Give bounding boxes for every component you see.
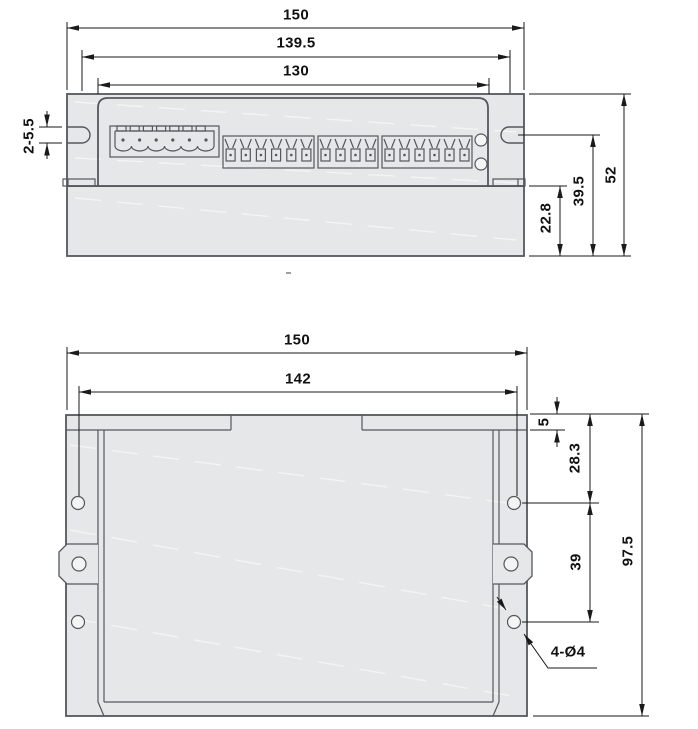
drawing-linework [0,0,698,729]
dim-front-base-height: 22.8 [538,203,555,233]
dim-plan-hole-span: 142 [285,371,311,388]
technical-drawing: 150 139.5 130 2-5.5 52 39.5 22.8 150 142… [0,0,698,729]
dim-plan-hole-pitch: 39 [568,553,585,570]
dim-front-slot-center-height: 39.5 [571,176,588,206]
dim-front-mounting-width: 139.5 [276,35,315,52]
plan-view [59,347,649,716]
plan-enclosure-outline [59,415,532,716]
stray-mark [286,272,291,274]
dim-plan-hole-callout: 4-Ø4 [551,644,586,661]
dim-plan-overall-width: 150 [284,332,310,349]
dim-front-panel-width: 130 [283,63,309,80]
dim-plan-top-inset: 5 [536,418,553,427]
dim-front-overall-height: 52 [603,166,620,183]
dim-plan-hole-top-offset: 28.3 [567,443,584,473]
dim-front-overall-width: 150 [283,7,309,24]
dim-front-slot-callout: 2-5.5 [21,118,38,154]
front-enclosure-outline [63,94,525,256]
dim-plan-overall-height: 97.5 [620,536,637,566]
